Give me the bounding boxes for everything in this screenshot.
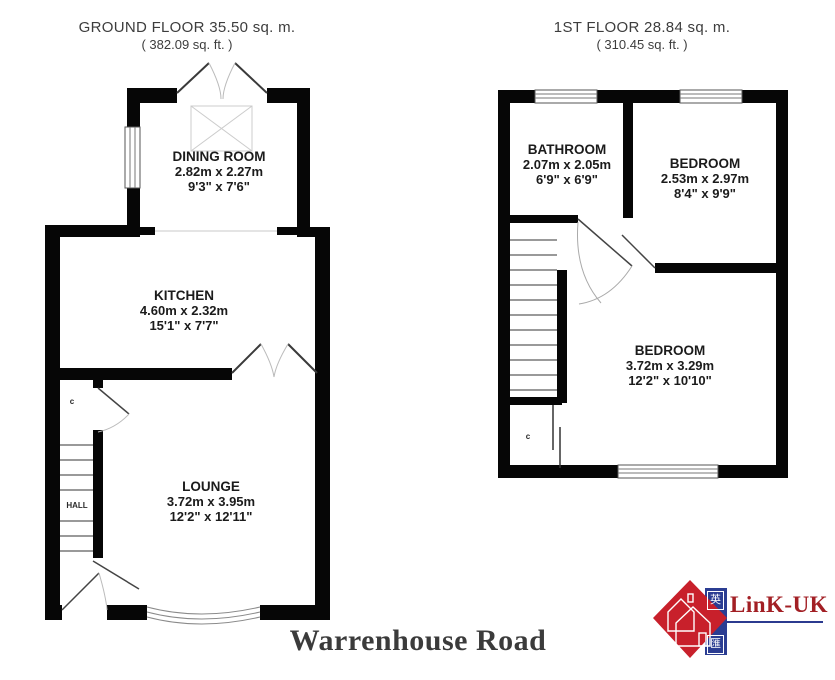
wall-segment — [45, 225, 60, 620]
room-size-imperial: 12'2" x 12'11" — [167, 509, 255, 524]
room-size-imperial: 6'9" x 6'9" — [523, 172, 611, 187]
lounge-label: LOUNGE 3.72m x 3.95m 12'2" x 12'11" — [167, 479, 255, 524]
wall-segment — [277, 227, 297, 235]
logo-wordmark: LinK-UK — [730, 592, 828, 618]
bedroom1-label: BEDROOM 2.53m x 2.97m 8'4" x 9'9" — [661, 156, 749, 201]
hall-cupboard-door — [98, 388, 129, 432]
cupboard-door-jambs — [553, 405, 560, 468]
room-size-imperial: 8'4" x 9'9" — [661, 186, 749, 201]
wall-segment — [127, 188, 140, 228]
bedroom2-label: BEDROOM 3.72m x 3.29m 12'2" x 10'10" — [626, 343, 714, 388]
bay-window — [147, 607, 260, 624]
wall-segment — [107, 605, 147, 620]
wall-segment — [718, 465, 788, 478]
logo-cjk-top: 英 — [707, 591, 724, 610]
roof-light — [191, 106, 252, 151]
room-size-metric: 3.72m x 3.95m — [167, 494, 255, 509]
landing-doors — [577, 219, 655, 304]
ground-floor-plan — [45, 63, 330, 624]
room-name: DINING ROOM — [173, 149, 266, 164]
bedroom2-window — [618, 465, 718, 478]
room-name: BEDROOM — [626, 343, 714, 358]
room-size-metric: 2.53m x 2.97m — [661, 171, 749, 186]
link-uk-logo: LinK-UK 英 匯 — [650, 572, 835, 672]
kitchen-lounge-doors — [232, 344, 317, 377]
wall-segment — [93, 378, 103, 388]
logo-underline — [726, 621, 823, 623]
room-size-metric: 2.82m x 2.27m — [173, 164, 266, 179]
wall-segment — [498, 90, 510, 478]
wall-segment — [498, 465, 618, 478]
room-size-metric: 3.72m x 3.29m — [626, 358, 714, 373]
room-size-metric: 4.60m x 2.32m — [140, 303, 228, 318]
wall-segment — [45, 368, 232, 380]
bathroom-window — [535, 90, 597, 103]
first-floor-area-sqft: ( 310.45 sq. ft. ) — [554, 37, 730, 52]
wall-segment — [127, 88, 140, 127]
room-size-imperial: 15'1" x 7'7" — [140, 318, 228, 333]
floorplan-page: GROUND FLOOR 35.50 sq. m. ( 382.09 sq. f… — [0, 0, 835, 680]
ground-floor-title: GROUND FLOOR 35.50 sq. m. — [79, 19, 296, 37]
wall-segment — [140, 227, 155, 235]
wall-segment — [557, 270, 567, 403]
room-size-imperial: 9'3" x 7'6" — [173, 179, 266, 194]
dining-room-label: DINING ROOM 2.82m x 2.27m 9'3" x 7'6" — [173, 149, 266, 194]
first-floor-title: 1ST FLOOR 28.84 sq. m. — [554, 19, 730, 37]
bedroom1-window — [680, 90, 742, 103]
property-title: Warrenhouse Road — [290, 624, 547, 658]
first-cupboard-label: c — [526, 432, 530, 441]
ground-stairs — [60, 445, 93, 551]
wall-segment — [623, 103, 633, 218]
wall-segment — [260, 605, 318, 620]
hall-label: HALL — [66, 501, 87, 510]
wall-segment — [655, 263, 776, 273]
room-name: BEDROOM — [661, 156, 749, 171]
first-stairs — [510, 240, 557, 390]
ground-floor-header: GROUND FLOOR 35.50 sq. m. ( 382.09 sq. f… — [79, 19, 296, 52]
wall-segment — [45, 605, 62, 620]
wall-segment — [498, 397, 562, 405]
ground-floor-area-sqft: ( 382.09 sq. ft. ) — [79, 37, 296, 52]
bathroom-label: BATHROOM 2.07m x 2.05m 6'9" x 6'9" — [523, 142, 611, 187]
room-name: LOUNGE — [167, 479, 255, 494]
kitchen-label: KITCHEN 4.60m x 2.32m 15'1" x 7'7" — [140, 288, 228, 333]
dining-window — [125, 127, 140, 188]
wall-segment — [315, 227, 330, 620]
ground-cupboard-label: c — [70, 397, 74, 406]
wall-segment — [597, 90, 680, 103]
room-name: BATHROOM — [523, 142, 611, 157]
room-size-metric: 2.07m x 2.05m — [523, 157, 611, 172]
room-size-imperial: 12'2" x 10'10" — [626, 373, 714, 388]
first-floor-header: 1ST FLOOR 28.84 sq. m. ( 310.45 sq. ft. … — [554, 19, 730, 52]
wall-segment — [297, 88, 310, 229]
front-door — [62, 561, 139, 610]
logo-cjk-bottom: 匯 — [707, 635, 724, 654]
room-name: KITCHEN — [140, 288, 228, 303]
wall-segment — [776, 90, 788, 478]
wall-segment — [93, 430, 103, 558]
patio-doors — [177, 63, 267, 99]
wall-segment — [498, 215, 578, 223]
